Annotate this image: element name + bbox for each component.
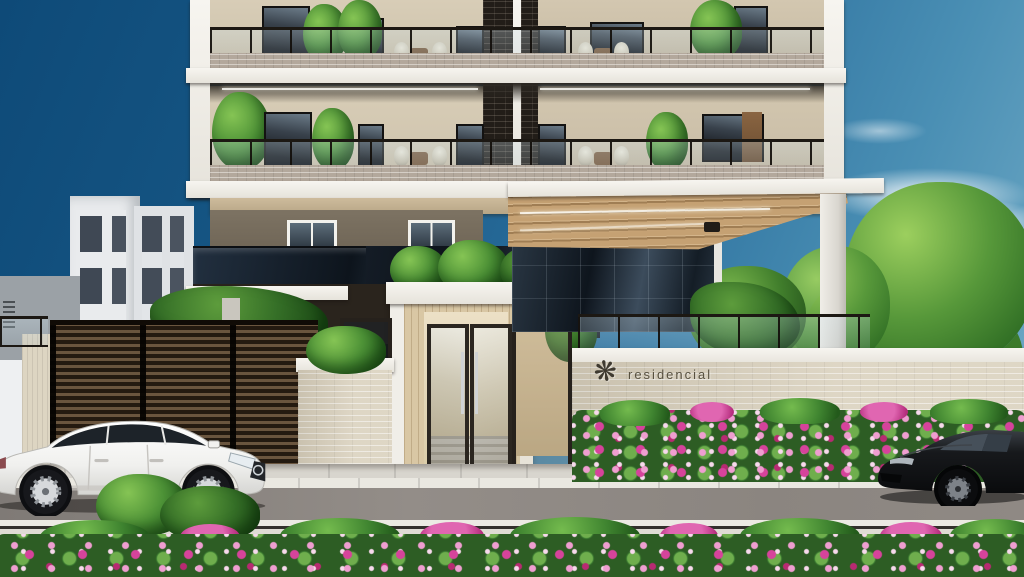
- cloud: [832, 118, 927, 144]
- floor-slab: [186, 68, 846, 83]
- tail-light: [0, 457, 6, 469]
- glass-fence-panel: [512, 318, 572, 468]
- hedge-bloom: [690, 402, 734, 422]
- balcony-soffit: [210, 83, 824, 103]
- facade-pilaster: [190, 0, 210, 198]
- planter-bush: [306, 326, 386, 374]
- side-mirror: [208, 441, 219, 448]
- door-handle: [149, 459, 163, 462]
- ceiling-light-strip: [222, 88, 478, 90]
- door-handle[interactable]: [461, 352, 464, 414]
- hedge-tuft: [760, 398, 840, 424]
- door-handle: [94, 459, 108, 462]
- black-sports-car: [876, 404, 1024, 506]
- rear-wheel: [23, 469, 68, 514]
- door-handle[interactable]: [475, 352, 478, 414]
- sign-label: residencial: [628, 366, 738, 384]
- left-railing: [0, 316, 48, 347]
- downlight-fixture: [704, 222, 720, 232]
- hedge-tuft: [600, 400, 670, 426]
- ceiling-light-strip: [540, 88, 810, 90]
- flower-bed: [0, 534, 1024, 577]
- architectural-render: ❋ residencial: [0, 0, 1024, 577]
- facade-pilaster: [824, 0, 844, 198]
- sign-logo-icon: ❋: [591, 353, 628, 392]
